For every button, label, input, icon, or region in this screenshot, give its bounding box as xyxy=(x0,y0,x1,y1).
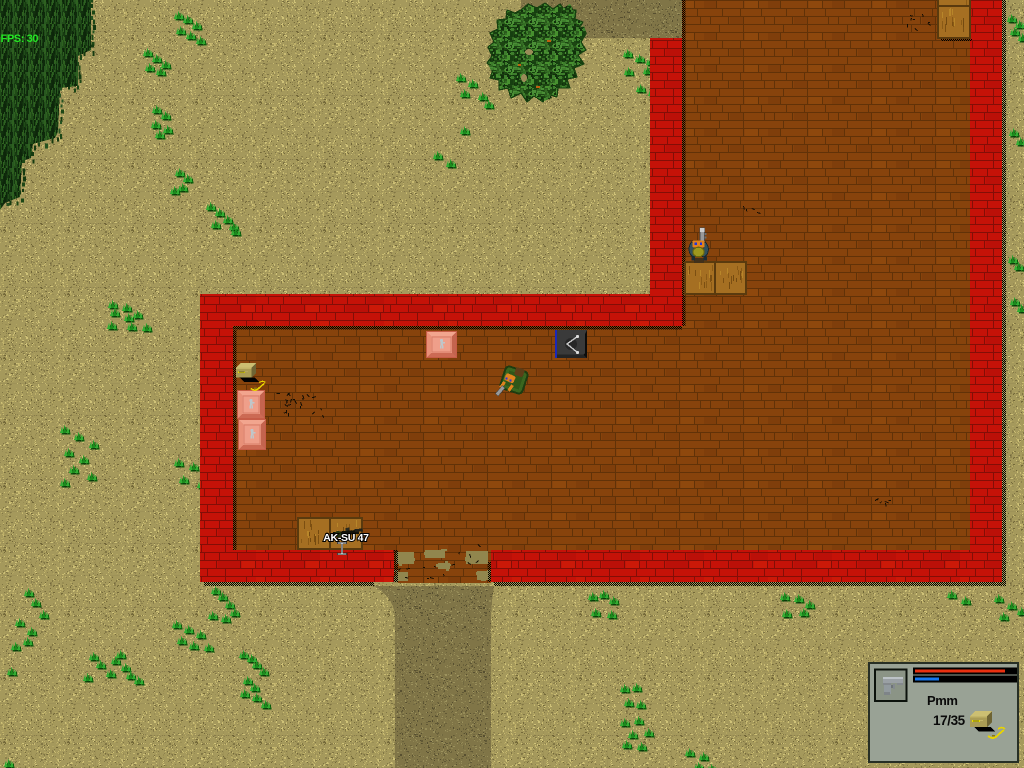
svg-text:Pmm: Pmm xyxy=(927,693,958,708)
svg-text:17/35: 17/35 xyxy=(933,713,966,728)
svg-text:FPS: 30: FPS: 30 xyxy=(1,33,39,45)
